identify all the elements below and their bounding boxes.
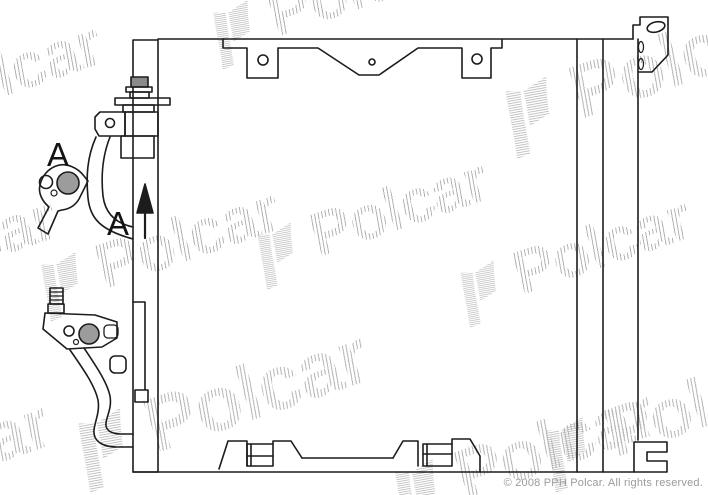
top-mounting-bar bbox=[158, 39, 633, 78]
mounting-hole-right bbox=[472, 54, 482, 64]
polcar-catalog-diagram-page: Polcar Polcar Polcar Polcar Polcar Polca… bbox=[0, 0, 708, 495]
connector-pin-hole bbox=[51, 190, 57, 196]
condenser-technical-drawing bbox=[0, 0, 708, 495]
connector-detail-view bbox=[38, 165, 88, 234]
outlet-pipe-bottom bbox=[70, 348, 133, 447]
flow-direction-label: A bbox=[107, 207, 129, 240]
connector-port-large bbox=[57, 172, 79, 194]
bottom-right-bracket bbox=[634, 442, 667, 472]
valve-cap bbox=[131, 77, 148, 87]
fitting-bracket-plate bbox=[95, 112, 125, 136]
condenser-core-outline bbox=[133, 39, 634, 472]
lower-pipe-fitting bbox=[43, 288, 126, 373]
top-right-bracket bbox=[633, 17, 668, 72]
mounting-feet-bottom bbox=[219, 439, 480, 472]
right-tank bbox=[603, 39, 638, 472]
bracket-slot bbox=[646, 20, 666, 34]
mounting-hole-left bbox=[258, 55, 268, 65]
fitting-port bbox=[79, 324, 99, 344]
fitting-bolt-hole bbox=[64, 326, 74, 336]
copyright-notice: © 2008 PPH Polcar. All rights reserved. bbox=[504, 477, 703, 489]
bracket-hole-upper bbox=[639, 42, 644, 53]
bracket-hole-lower bbox=[639, 59, 644, 70]
fitting-tab bbox=[110, 356, 126, 373]
fitting-pin-hole bbox=[74, 340, 79, 345]
fitting-slot bbox=[104, 325, 118, 338]
flow-direction-arrow bbox=[137, 184, 153, 238]
mounting-hole-center bbox=[369, 59, 375, 65]
detail-view-label: A bbox=[47, 138, 69, 171]
fitting-bracket-hole bbox=[106, 119, 115, 128]
